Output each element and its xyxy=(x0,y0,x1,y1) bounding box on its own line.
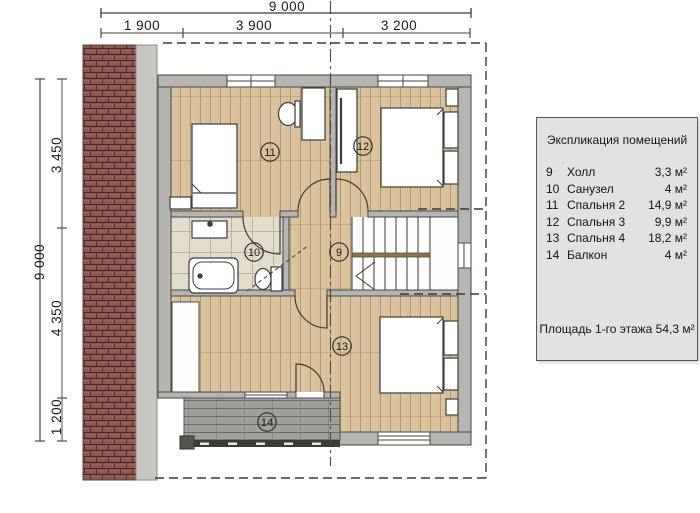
window-bedroom3 xyxy=(378,75,428,87)
bed-single-bedroom2 xyxy=(192,124,237,208)
legend-title: Экспликация помещений xyxy=(537,133,697,147)
wall-mid-a xyxy=(171,211,243,217)
legend-row: 13 Спальня 4 18,2 м² xyxy=(546,230,687,247)
legend-row: 9 Холл 3,3 м² xyxy=(546,164,687,181)
dim-left-seg3: 1 200 xyxy=(49,399,64,435)
marker-bedroom4-label: 13 xyxy=(336,341,348,353)
bed-double-bedroom4 xyxy=(380,317,458,393)
dim-left-seg1: 3 450 xyxy=(49,137,64,173)
wall-bottom-b xyxy=(430,432,471,445)
dimension-top: 9 000 1 900 3 900 3 200 xyxy=(101,0,471,38)
sink xyxy=(192,221,227,238)
wall-bath-east xyxy=(283,217,289,296)
wall-balcony-c xyxy=(324,392,340,398)
legend-row-name: Спальня 4 xyxy=(567,230,648,247)
window-balcony xyxy=(245,392,287,398)
bathtub xyxy=(189,258,238,293)
legend-row-area: 9,9 м² xyxy=(655,214,687,231)
bed-double-bedroom3 xyxy=(381,108,458,187)
legend-row-area: 18,2 м² xyxy=(648,230,687,247)
legend-row: 12 Спальня 3 9,9 м² xyxy=(546,214,687,231)
wall-mid-c xyxy=(368,211,458,217)
wall-left xyxy=(158,87,171,398)
legend-row-area: 4 м² xyxy=(665,247,687,264)
legend-row-name: Спальня 2 xyxy=(567,197,648,214)
marker-bedroom2-label: 11 xyxy=(264,147,275,159)
toilet xyxy=(255,267,282,291)
window-bedroom2 xyxy=(227,75,275,87)
dim-left-total: 9 000 xyxy=(32,244,47,280)
dim-left-seg2: 4 350 xyxy=(49,300,64,336)
legend-row: 14 Балкон 4 м² xyxy=(546,247,687,264)
wall-hall-south-right xyxy=(327,290,458,296)
closet-bedroom4 xyxy=(172,302,199,392)
wall-balcony-a xyxy=(158,392,245,398)
legend-row-name: Холл xyxy=(567,164,655,181)
marker-bathroom-label: 10 xyxy=(248,247,260,259)
balcony-post xyxy=(180,436,194,449)
legend-row-num: 11 xyxy=(546,197,567,214)
legend-row-name: Балкон xyxy=(567,247,665,264)
dim-top-seg3: 3 200 xyxy=(381,18,417,33)
nightstand-bedroom2 xyxy=(170,197,191,209)
wall-mid-b xyxy=(280,211,298,217)
legend-row-num: 13 xyxy=(546,230,567,247)
dimension-left: 9 000 3 450 4 350 1 200 xyxy=(32,79,67,441)
legend-footer: Площадь 1-го этажа 54,3 м² xyxy=(537,322,697,336)
legend-row-area: 4 м² xyxy=(665,181,687,198)
legend-row-name: Санузел xyxy=(567,181,665,198)
floor-plan-sheet: 9 000 1 900 3 900 3 200 9 000 3 450 4 35… xyxy=(0,0,700,513)
dim-top-seg2: 3 900 xyxy=(236,18,272,33)
desk xyxy=(302,88,325,140)
wardrobe-bedroom3 xyxy=(337,89,357,172)
chair xyxy=(279,101,301,127)
legend-row: 10 Санузел 4 м² xyxy=(546,181,687,198)
legend-row-num: 10 xyxy=(546,181,567,198)
dim-top-seg1: 1 900 xyxy=(124,18,160,33)
window-stairs xyxy=(458,243,471,268)
legend-row-area: 14,9 м² xyxy=(648,197,687,214)
marker-hall-label: 9 xyxy=(336,247,342,259)
legend-rows: 9 Холл 3,3 м² 10 Санузел 4 м² 11 Спальня… xyxy=(546,164,687,264)
legend-row-num: 9 xyxy=(546,164,567,181)
legend-row-area: 3,3 м² xyxy=(655,164,687,181)
nightstand-bedroom4 xyxy=(446,399,458,415)
stair-handrail xyxy=(352,253,430,257)
legend-panel: Экспликация помещений 9 Холл 3,3 м² 10 С… xyxy=(536,117,698,361)
legend-row-name: Спальня 3 xyxy=(567,214,655,231)
nightstand-bedroom3 xyxy=(446,89,458,106)
legend-row: 11 Спальня 2 14,9 м² xyxy=(546,197,687,214)
legend-row-num: 12 xyxy=(546,214,567,231)
dim-top-total: 9 000 xyxy=(269,0,305,14)
legend-row-num: 14 xyxy=(546,247,567,264)
window-bedroom4 xyxy=(378,432,430,445)
wall-balcony-b xyxy=(287,392,296,398)
marker-balcony-label: 14 xyxy=(261,417,273,429)
marker-bedroom3-label: 12 xyxy=(357,141,369,153)
roof-eave-strip xyxy=(83,45,157,480)
